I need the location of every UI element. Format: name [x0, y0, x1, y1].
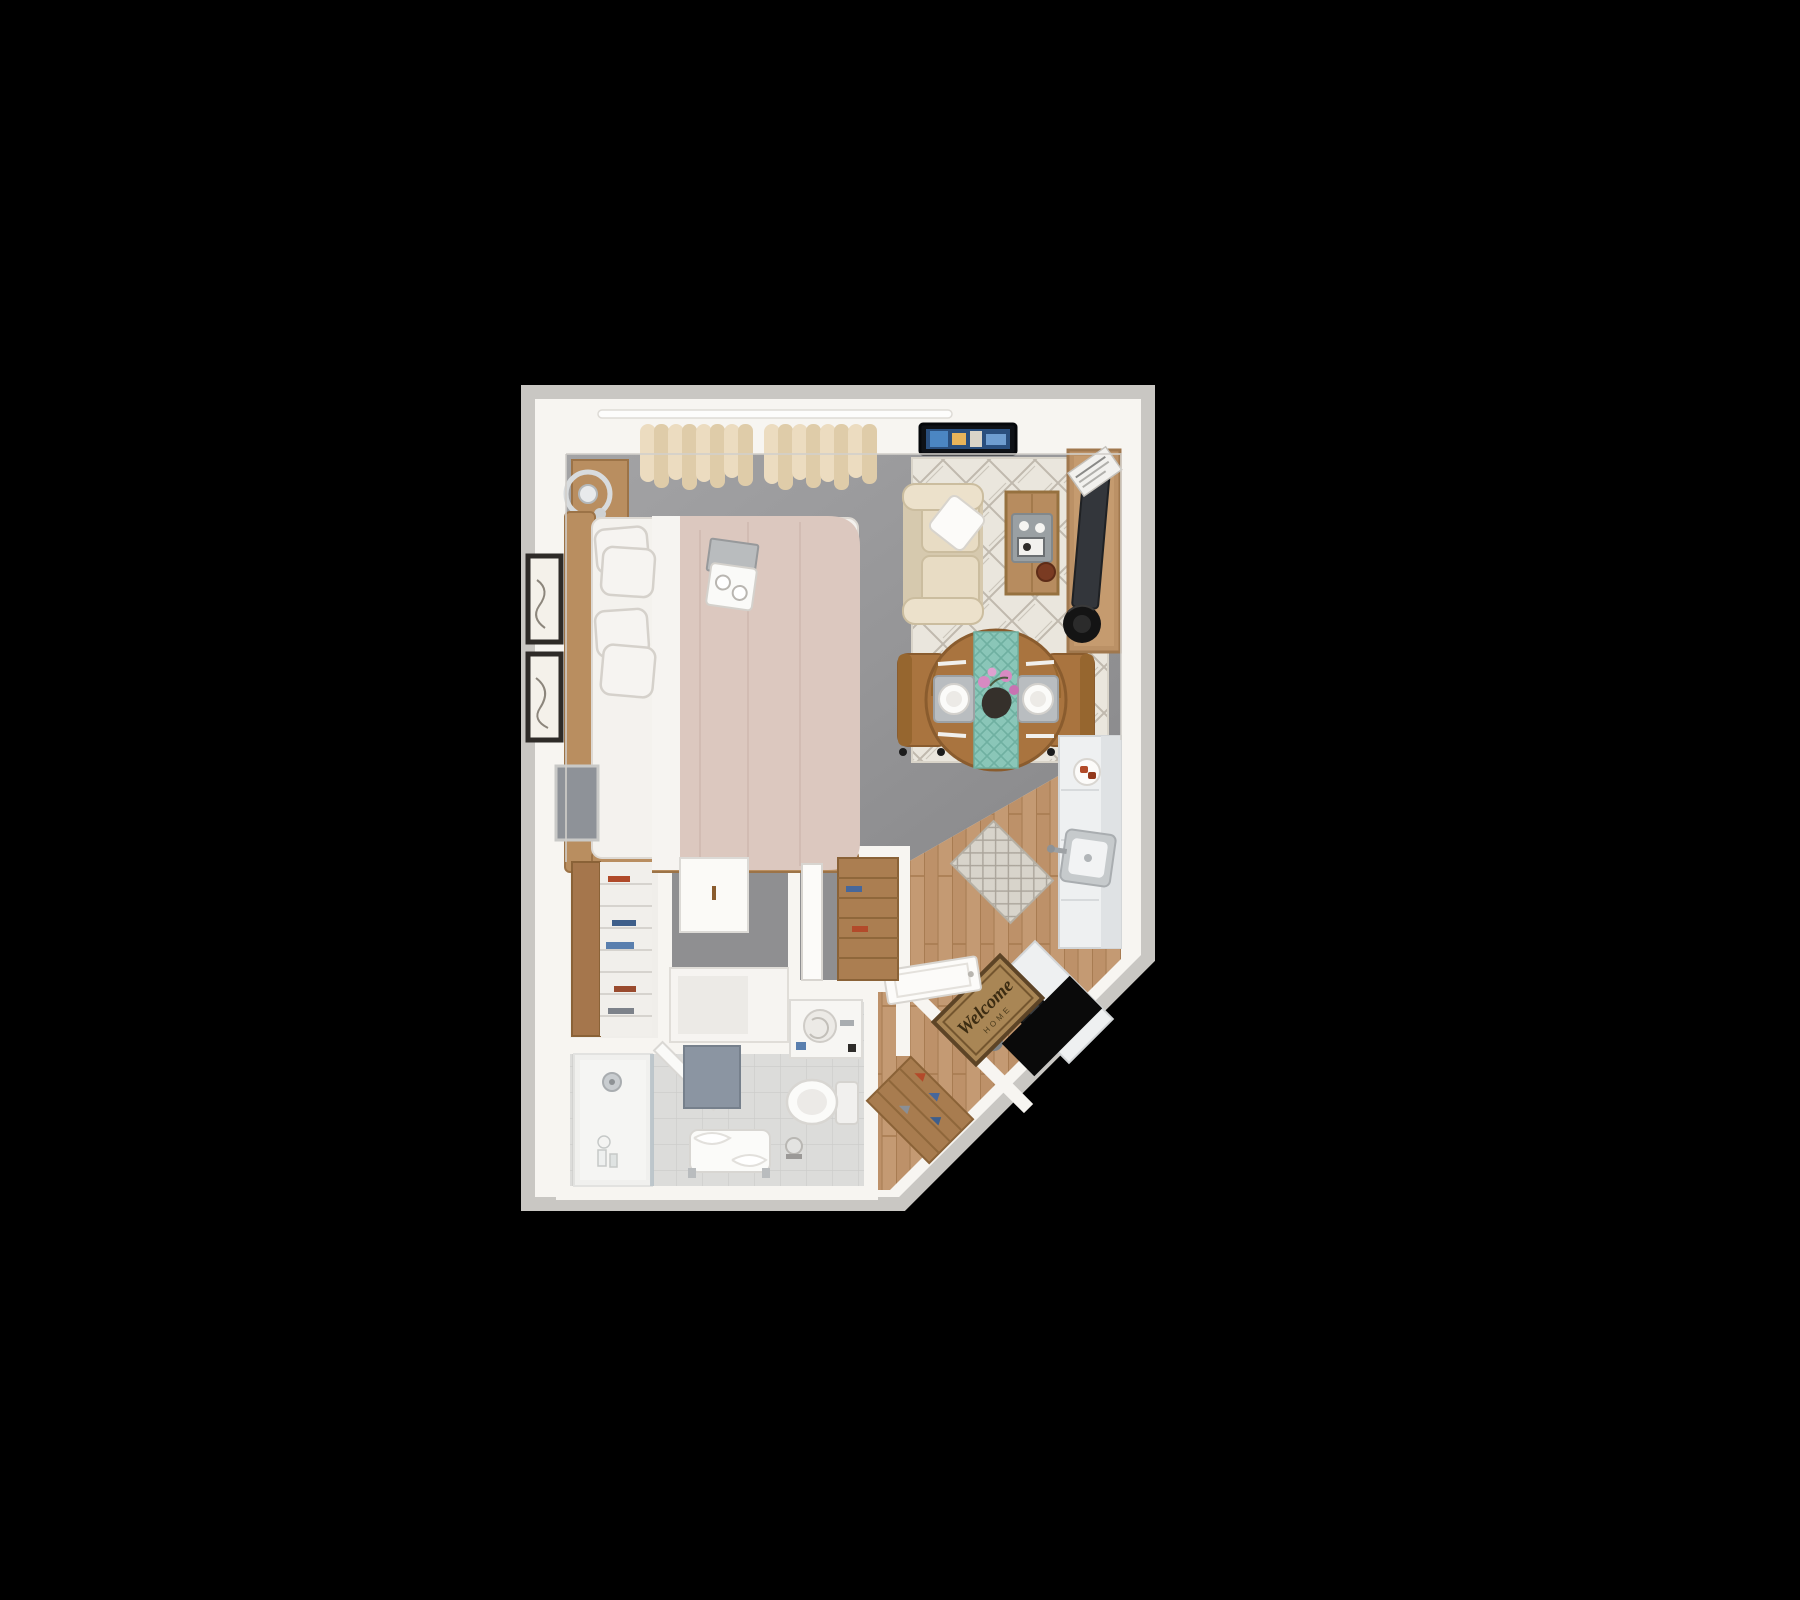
wall-tv	[920, 424, 1016, 454]
coffee-table	[1006, 492, 1058, 594]
bowl	[1037, 563, 1055, 581]
bed	[565, 512, 860, 872]
closet-right	[802, 858, 898, 980]
bath-mat	[684, 1046, 740, 1108]
closet-left-panel	[572, 862, 600, 1036]
bathroom-vanity	[790, 1000, 862, 1058]
leaning-mirror	[556, 766, 598, 840]
duvet-fold	[652, 516, 680, 870]
closet-right-door	[802, 864, 822, 980]
curtain-rod	[598, 410, 952, 418]
floorplan-svg: Welcome HOME	[0, 0, 1800, 1600]
hat	[1063, 605, 1101, 643]
media-console	[1063, 447, 1122, 652]
toilet-paper-holder	[786, 1138, 802, 1159]
sofa	[903, 484, 986, 624]
bath-bench	[688, 1130, 770, 1178]
closet-left	[572, 862, 652, 1036]
floorplan-canvas: Welcome HOME	[0, 0, 1800, 1600]
pastry-plate	[1074, 759, 1100, 785]
dining-table	[926, 630, 1066, 770]
breakfast-tray	[702, 538, 761, 610]
bedroom	[528, 460, 860, 872]
